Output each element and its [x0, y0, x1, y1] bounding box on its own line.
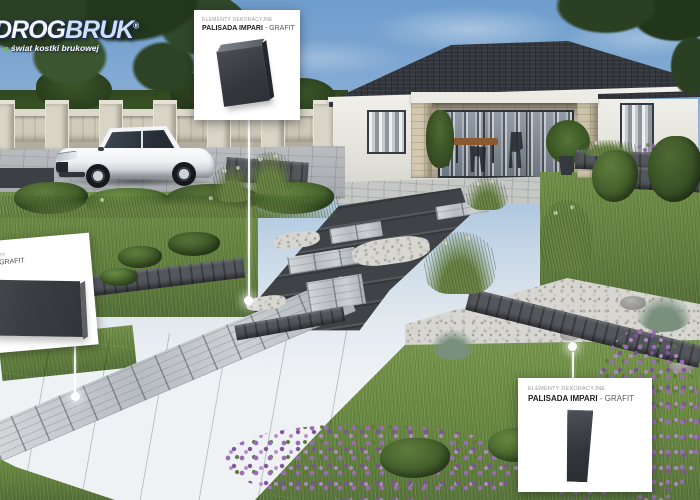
ornamental-grass — [540, 200, 592, 272]
foreground-grasses — [0, 196, 340, 218]
slab-side-face — [80, 281, 88, 340]
fence-pillar — [0, 104, 14, 150]
card-separator: - — [598, 394, 605, 403]
card-product-name: PALISADA IMPARI — [202, 25, 263, 32]
callout-line-top — [248, 120, 250, 298]
logo-part1: DROG — [0, 16, 65, 44]
patio-table-leg — [492, 145, 494, 163]
car-wheel-front — [86, 164, 110, 188]
card-variant: GRAFIT — [269, 25, 295, 32]
callout-dot-left — [71, 392, 80, 401]
card-variant: GRAFIT — [605, 394, 634, 403]
logo-tagline-row: świat kostki brukowej — [4, 43, 138, 53]
callout-dot-top — [244, 296, 253, 305]
card-title: PALISADA IMPARI - GRAFIT — [528, 394, 642, 403]
brand-logo: DROGBRUK® świat kostki brukowej — [0, 18, 138, 53]
card-product-name: PALISADA IMPARI — [528, 394, 598, 403]
card-variant-fragment: GRAFIT — [0, 257, 25, 266]
tree-edge-right — [656, 24, 700, 108]
callout-card-top: ELEMENTY DEKORACYJNE PALISADA IMPARI - G… — [194, 10, 300, 120]
patio-table — [452, 138, 498, 145]
scene-visualization: ELEMENTY DEKORACYJNE PALISADA IMPARI - G… — [0, 0, 700, 500]
car-bumper-intake — [59, 172, 85, 177]
leaf-icon — [4, 47, 8, 51]
car-wheel-rear — [172, 162, 196, 186]
card-category: ELEMENTY DEKORACYJNE — [528, 386, 642, 392]
window-left — [367, 110, 406, 154]
blue-fescue — [636, 296, 692, 332]
small-tree — [648, 136, 700, 202]
registered-mark: ® — [133, 22, 138, 31]
callout-card-bottom-right: ELEMENTY DEKORACYJNE PALISADA IMPARI - G… — [518, 378, 652, 492]
logo-part2: BRUK — [65, 16, 133, 44]
callout-dot-bottom-right — [568, 342, 577, 351]
card-category: ELEMENTY DEKORACYJNE — [202, 17, 292, 23]
card-category-fragment: RY — [0, 252, 6, 259]
ornamental-grass — [466, 178, 508, 210]
logo-tagline: świat kostki brukowej — [11, 43, 99, 53]
porch-header-beam — [411, 92, 598, 103]
post-top-face — [567, 405, 596, 412]
product-image-palisade-block — [216, 45, 269, 107]
product-image-slab — [0, 279, 83, 337]
car-mirror — [98, 147, 104, 151]
callout-line-bottom-right — [572, 352, 574, 380]
block-side-face — [262, 40, 275, 100]
card-title: PALISADA IMPARI - GRAFIT — [202, 25, 292, 32]
logo-wordmark: DROGBRUK® — [0, 18, 138, 43]
car — [56, 126, 218, 188]
blue-fescue — [430, 330, 476, 360]
patio-table-leg — [456, 145, 458, 163]
porch-plant — [426, 110, 454, 168]
callout-card-left: RY GRAFIT — [0, 233, 99, 356]
ornamental-grass — [424, 232, 496, 294]
callout-line-left — [74, 346, 76, 394]
product-image-palisade-post — [565, 410, 593, 483]
block-top-face — [217, 39, 264, 53]
